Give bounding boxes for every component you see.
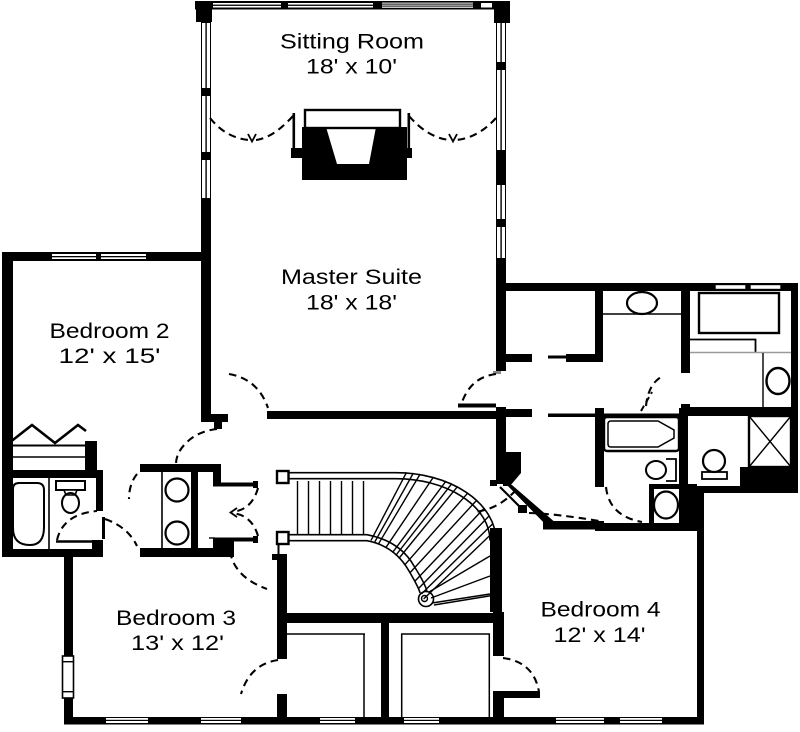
svg-text:Sitting Room: Sitting Room bbox=[280, 31, 424, 54]
svg-text:18' x 10': 18' x 10' bbox=[306, 56, 397, 79]
svg-text:18' x 18': 18' x 18' bbox=[306, 292, 397, 315]
svg-text:12' x 14': 12' x 14' bbox=[554, 624, 646, 647]
svg-text:Bedroom 4: Bedroom 4 bbox=[541, 599, 661, 622]
svg-text:Master Suite: Master Suite bbox=[281, 266, 422, 289]
svg-text:13' x 12': 13' x 12' bbox=[131, 632, 224, 655]
svg-text:Bedroom 3: Bedroom 3 bbox=[116, 607, 236, 630]
svg-text:12' x 15': 12' x 15' bbox=[59, 345, 161, 368]
svg-text:Bedroom 2: Bedroom 2 bbox=[50, 320, 170, 343]
